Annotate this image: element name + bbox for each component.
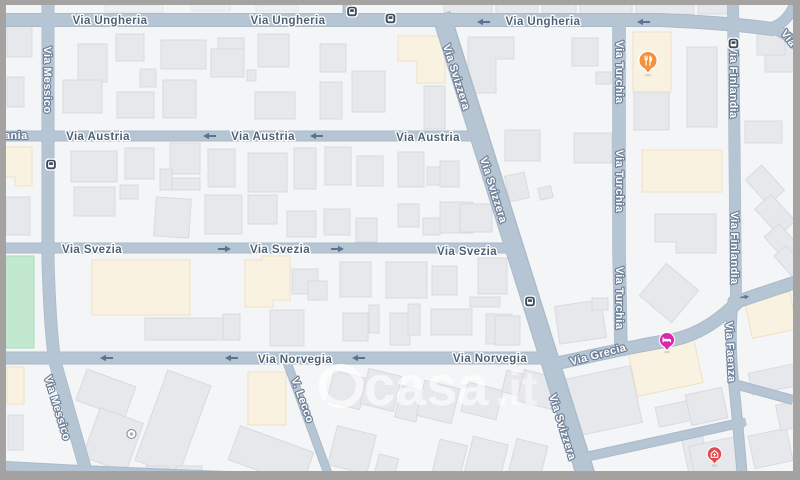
svg-text:Via Austria: Via Austria: [66, 131, 130, 143]
svg-text:Via Svezia: Via Svezia: [437, 246, 497, 258]
svg-text:Via Austria: Via Austria: [396, 132, 460, 144]
svg-text:Via Finlandia: Via Finlandia: [727, 46, 739, 119]
svg-text:casa: casa: [364, 354, 489, 417]
svg-text:ania: ania: [4, 130, 28, 142]
svg-text:Via Finlandia: Via Finlandia: [728, 212, 740, 285]
svg-text:Via Turchia: Via Turchia: [613, 267, 625, 330]
svg-text:Via Svezia: Via Svezia: [62, 244, 122, 256]
svg-text:Via Ungheria: Via Ungheria: [251, 15, 326, 27]
svg-text:Via Turchia: Via Turchia: [613, 150, 625, 213]
svg-text:Via Turchia: Via Turchia: [613, 41, 625, 104]
svg-text:Via Ungheria: Via Ungheria: [506, 16, 581, 28]
svg-text:Via Austria: Via Austria: [231, 131, 295, 143]
svg-text:.it: .it: [495, 363, 538, 416]
svg-text:Via Svezia: Via Svezia: [250, 244, 310, 256]
svg-text:Via Norvegia: Via Norvegia: [258, 354, 332, 366]
svg-text:Via Messico: Via Messico: [41, 46, 53, 113]
svg-text:Via Ungheria: Via Ungheria: [73, 15, 148, 27]
